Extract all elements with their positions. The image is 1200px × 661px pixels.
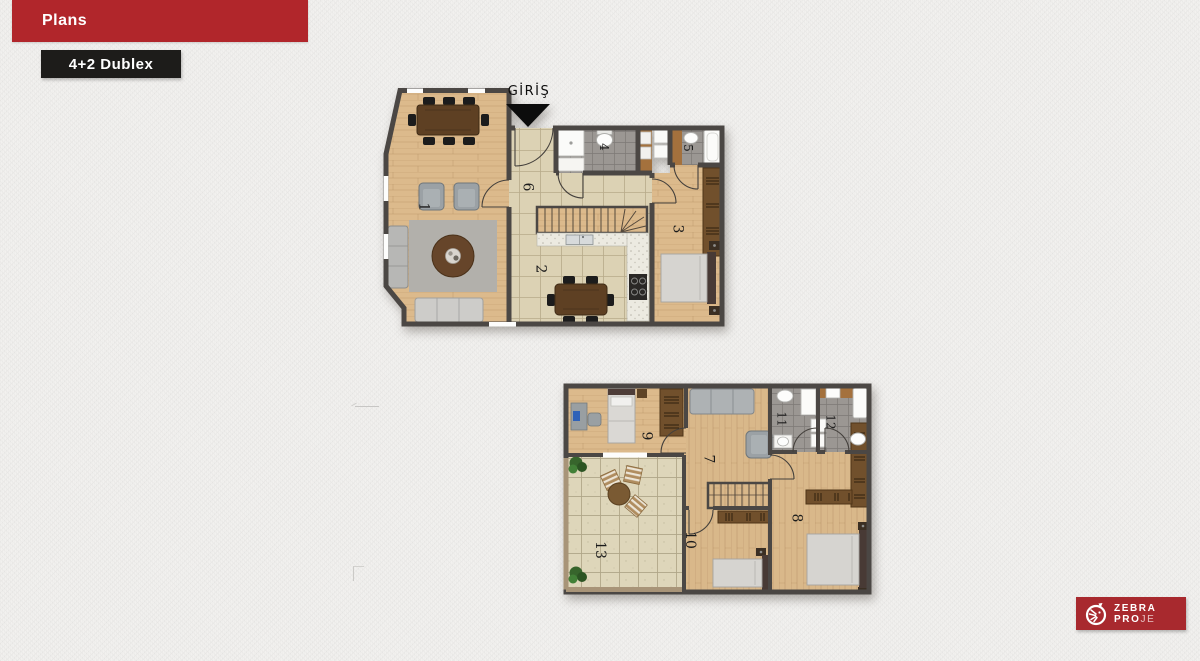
page-title: Plans — [42, 12, 87, 30]
terrace-door-window — [603, 453, 647, 458]
page-canvas: Plans 4+2 Dublex — [0, 0, 1200, 661]
room-label-8: 8 — [789, 514, 803, 523]
plan-type-label: 4+2 Dublex — [69, 56, 154, 73]
brand-line2: PROJE — [1114, 614, 1156, 625]
faint-scale-mark — [355, 406, 379, 410]
brand-logo[interactable]: ZEBRA PROJE — [1076, 597, 1186, 630]
room-label-6: 6 — [520, 183, 534, 192]
room-label-1: 1 — [416, 203, 430, 212]
room-label-9: 9 — [639, 432, 653, 441]
room-label-7: 7 — [701, 455, 715, 464]
brand-line2-light: JE — [1140, 614, 1155, 625]
room-label-12: 12 — [825, 414, 837, 429]
section-header-bar: Plans — [12, 0, 308, 42]
coffee-table-group — [432, 235, 474, 277]
brand-line1: ZEBRA — [1114, 603, 1156, 614]
brand-text: ZEBRA PROJE — [1114, 603, 1156, 625]
room-label-3: 3 — [670, 225, 684, 234]
entrance-arrow-icon — [506, 104, 550, 127]
plan-type-badge[interactable]: 4+2 Dublex — [41, 50, 181, 78]
side-sofa — [388, 226, 408, 288]
room-label-2: 2 — [533, 265, 547, 274]
stove — [629, 274, 647, 300]
lower-floor-plan: 9 7 11 12 8 10 13 — [563, 383, 872, 597]
upper-floor-plan: GİRİŞ 1 2 3 4 5 6 — [373, 88, 727, 331]
stairs-lower — [708, 483, 770, 508]
room-label-5: 5 — [682, 144, 694, 152]
brand-line2-bold: PRO — [1114, 614, 1140, 625]
room-label-11: 11 — [776, 411, 788, 426]
hall-cabinets — [654, 130, 669, 158]
stairs-upper — [537, 207, 647, 233]
faint-corner-mark — [353, 566, 364, 581]
room-label-4: 4 — [598, 143, 610, 151]
room-label-13: 13 — [593, 541, 607, 559]
room-label-10: 10 — [683, 531, 697, 549]
zebra-icon — [1084, 602, 1108, 626]
bottom-sofa — [415, 298, 483, 322]
entrance-label: GİRİŞ — [499, 84, 559, 99]
